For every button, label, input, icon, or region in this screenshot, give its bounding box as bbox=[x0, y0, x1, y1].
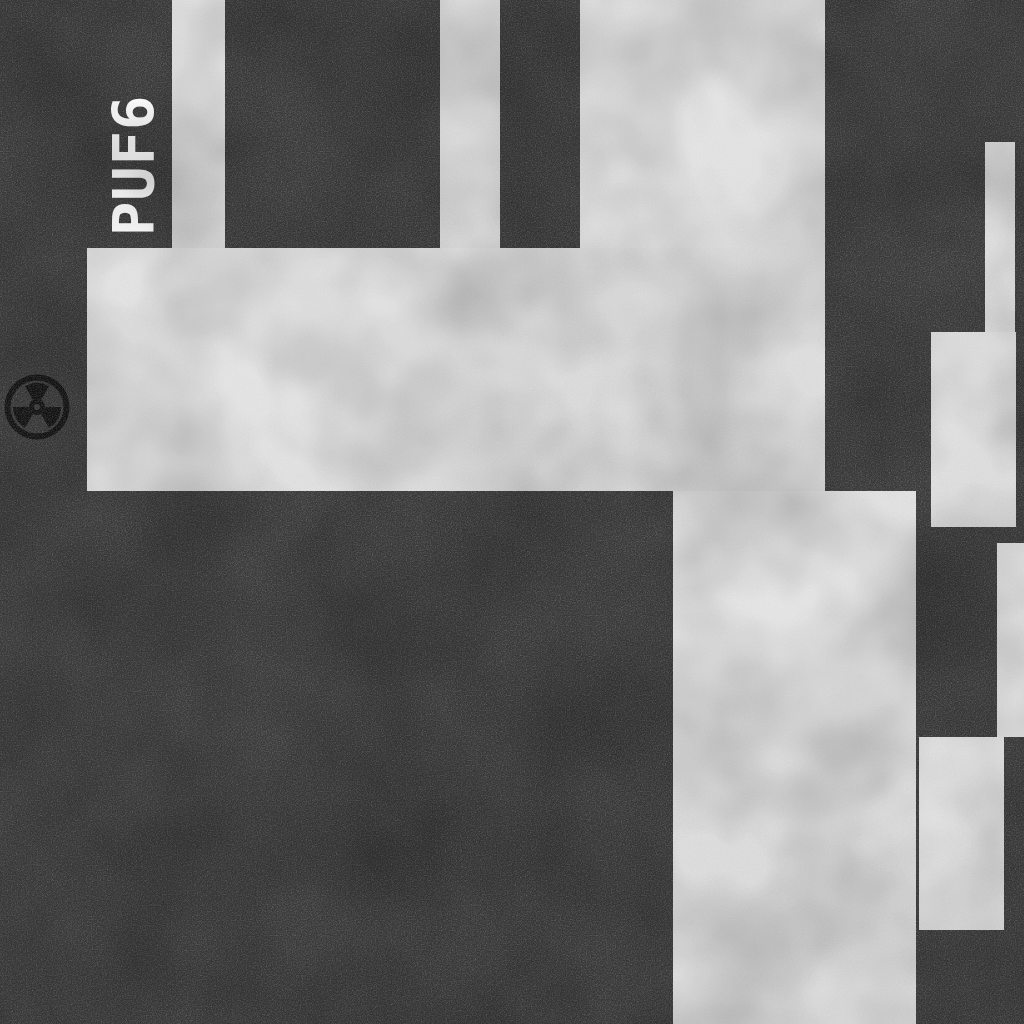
map-room bbox=[919, 737, 1004, 930]
map-room bbox=[931, 332, 1016, 527]
game-map: PUF6 bbox=[0, 0, 1024, 1024]
map-room bbox=[997, 543, 1024, 737]
map-room bbox=[985, 142, 1015, 342]
sector-label: PUF6 bbox=[106, 95, 163, 236]
map-room bbox=[87, 248, 825, 491]
radiation-icon[interactable] bbox=[4, 374, 70, 440]
map-room bbox=[673, 491, 916, 1024]
